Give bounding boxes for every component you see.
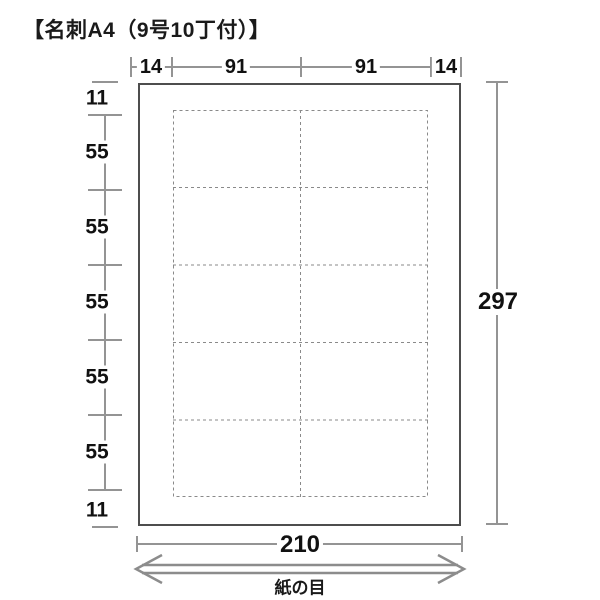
tick-mark: [460, 57, 462, 77]
tick-mark: [88, 414, 122, 416]
dim-label-sheet-height: 297: [475, 289, 521, 315]
dim-label-card-height-1: 55: [82, 141, 111, 164]
dim-label-margin-right: 14: [432, 56, 460, 78]
card-cut-grid: [173, 110, 428, 497]
tick-mark: [92, 526, 118, 528]
tick-mark: [136, 536, 138, 552]
tick-mark: [486, 523, 508, 525]
tick-mark: [130, 57, 132, 77]
dim-label-card-width-1: 91: [222, 56, 250, 78]
dim-label-card-width-2: 91: [352, 56, 380, 78]
dim-label-card-height-5: 55: [82, 441, 111, 464]
diagram-title: 【名刺A4（9号10丁付）】: [23, 14, 270, 44]
paper-sheet: [138, 83, 461, 526]
tick-mark: [88, 264, 122, 266]
tick-mark: [461, 536, 463, 552]
business-card-layout-diagram: 【名刺A4（9号10丁付）】 14 91 91 14: [0, 0, 600, 600]
dim-label-card-height-2: 55: [82, 216, 111, 239]
dim-label-margin-left: 14: [137, 56, 165, 78]
dim-label-margin-top: 11: [83, 87, 111, 110]
dim-label-margin-bottom: 11: [83, 499, 111, 522]
paper-grain-label: 紙の目: [275, 574, 326, 599]
tick-mark: [92, 81, 118, 83]
tick-mark: [88, 189, 122, 191]
dim-label-card-height-4: 55: [82, 366, 111, 389]
tick-mark: [88, 489, 122, 491]
dimension-line: [131, 66, 461, 68]
tick-mark: [171, 57, 173, 77]
dim-label-card-height-3: 55: [82, 291, 111, 314]
tick-mark: [88, 339, 122, 341]
tick-mark: [88, 114, 122, 116]
tick-mark: [300, 57, 302, 77]
tick-mark: [486, 81, 508, 83]
